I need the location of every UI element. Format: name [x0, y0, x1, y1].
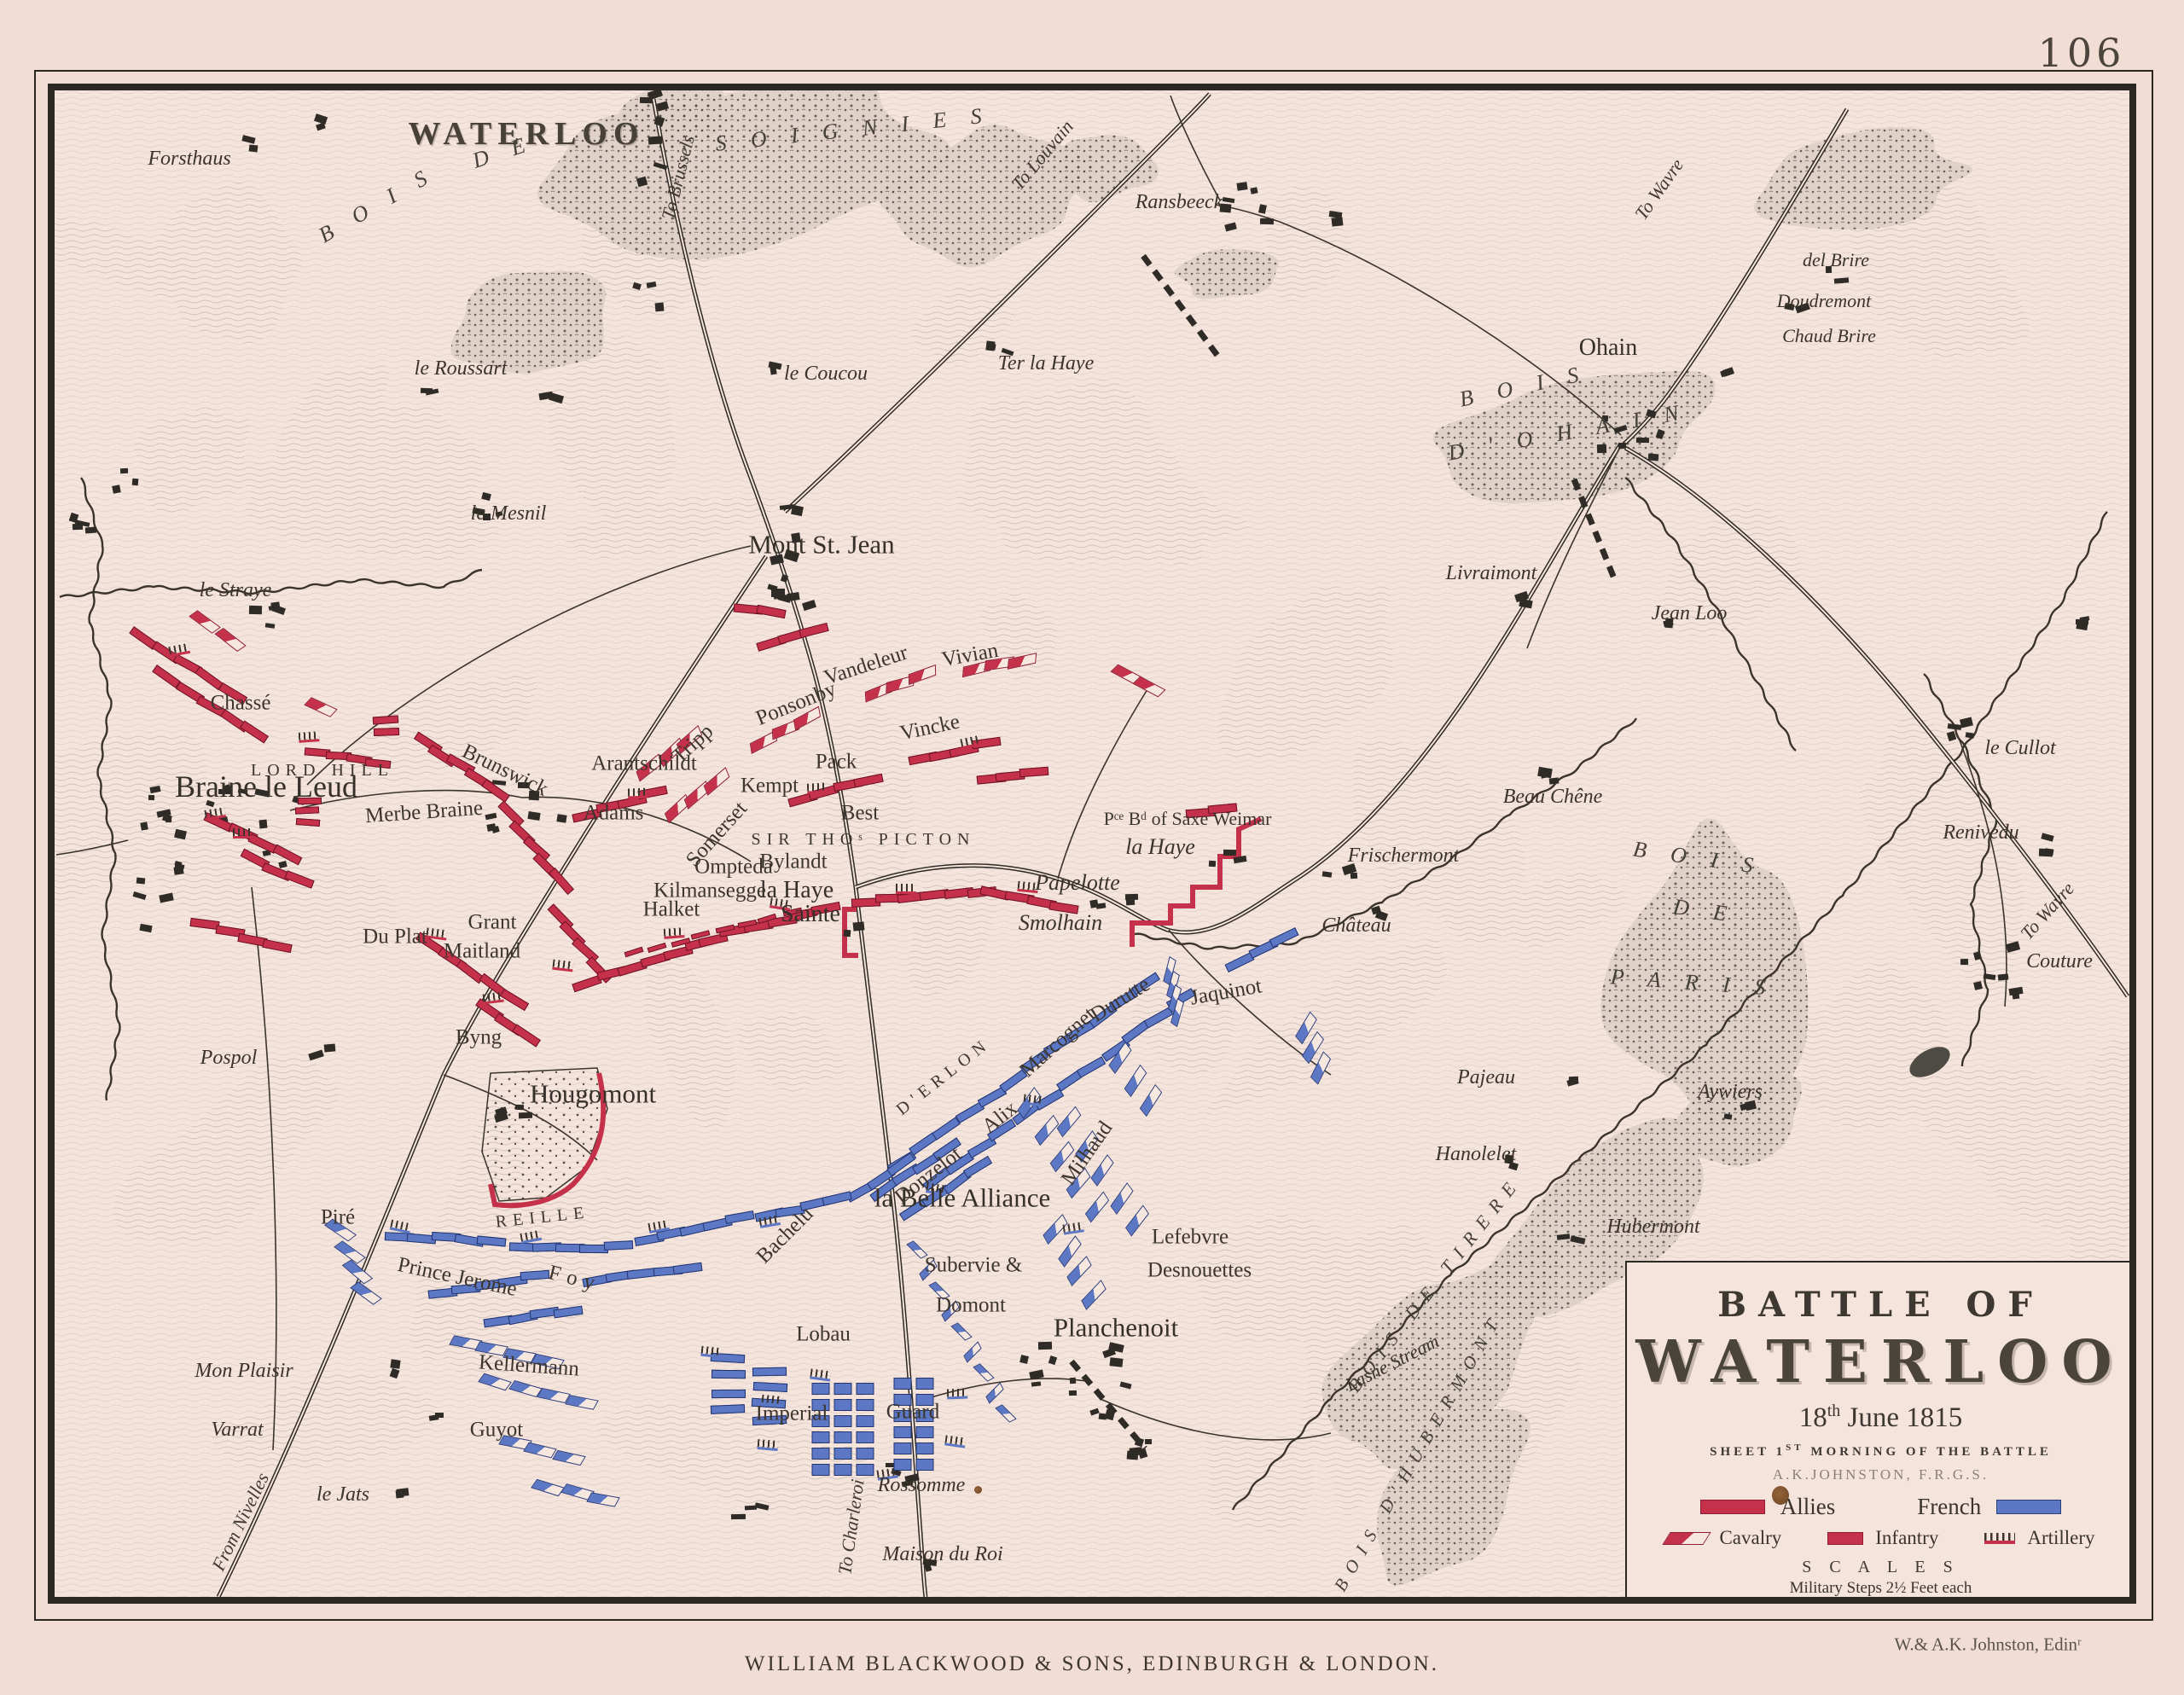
map-label: Mon Plaisir [195, 1361, 293, 1381]
map-label: Papelotte [1035, 872, 1120, 894]
map-label: REILLE [495, 1204, 590, 1230]
map-label: Lobau [796, 1324, 851, 1345]
map-label: Rossomme [878, 1475, 966, 1495]
map-label: le Jats [317, 1484, 369, 1505]
map-label: Piré [321, 1207, 355, 1228]
map-label: Subervie & [925, 1255, 1023, 1276]
map-label: Alix [979, 1097, 1021, 1137]
map-label: Grant [468, 912, 517, 933]
cavalry-symbol-icon [1663, 1532, 1711, 1545]
ink-stain [974, 1486, 982, 1494]
map-label: Adams [584, 803, 644, 824]
map-label: le Mesnil [471, 503, 547, 524]
map-label: Hougomont [530, 1081, 656, 1107]
legend-sides: Allies French [1700, 1494, 2061, 1520]
map-label: D'ERLON [893, 1035, 994, 1118]
map-label: Jaquinot [1188, 975, 1263, 1008]
steps-scale-label: Military Steps 2½ Feet each [1790, 1579, 1972, 1598]
map-label: Doudremont [1777, 292, 1871, 311]
engraver-imprint: W.& A.K. Johnston, Edinʳ [1894, 1634, 2081, 1656]
legend-arms: Cavalry Infantry Artillery [1666, 1527, 2094, 1549]
map-label: Lefebvre [1152, 1227, 1228, 1248]
map-label: B O I S [315, 163, 439, 247]
map-label: Desnouettes [1147, 1260, 1252, 1281]
map-label: B O I S [1632, 838, 1764, 878]
map-label: Livraimont [1446, 563, 1537, 583]
map-label: la Haye [760, 879, 834, 903]
map-label: S O I G N I E S [714, 104, 992, 155]
map-label: To Louvain [1008, 117, 1077, 194]
map-label: Guard [886, 1402, 939, 1423]
map-label: le Coucou [784, 363, 868, 384]
map-label: Vincke [898, 711, 961, 744]
map-label: Best [841, 803, 879, 824]
map-label: Byng [456, 1027, 502, 1048]
sheet-subtitle: SHEET 1ST MORNING OF THE BATTLE [1710, 1442, 2052, 1460]
map-sheet: 106 [0, 0, 2184, 1695]
map-label: Foy [546, 1262, 603, 1295]
cartographer-credit: A.K.JOHNSTON, F.R.G.S. [1773, 1466, 1989, 1483]
map-label: Maitland [444, 941, 520, 962]
map-label: To Wavre [2018, 879, 2078, 943]
map-label: Varrat [211, 1419, 263, 1440]
map-label: Pack [816, 752, 857, 773]
map-label: Château [1321, 915, 1391, 936]
map-label: Pᶜᵉ Bᵈ of Saxe Weimar [1104, 810, 1272, 828]
map-label: Hanolelet [1436, 1144, 1517, 1164]
map-label: Bachelu [752, 1203, 817, 1268]
map-title-line1: BATTLE OF [1717, 1285, 2044, 1325]
map-label: SIR THOˢ PICTON [752, 831, 976, 848]
publisher-imprint: WILLIAM BLACKWOOD & SONS, EDINBURGH & LO… [745, 1652, 1439, 1676]
title-cartouche: BATTLE OF WATERLOO 18th June 1815 SHEET … [1625, 1261, 2135, 1597]
map-label: From Nivelles [209, 1470, 272, 1573]
map-label: Sainte [781, 903, 840, 926]
cavalry-legend-label: Cavalry [1719, 1527, 1781, 1549]
map-label: Jean Loo [1652, 603, 1728, 624]
map-label: Hubermont [1606, 1216, 1699, 1237]
map-label: Pospol [200, 1048, 258, 1068]
map-label: To Brussels [659, 133, 698, 222]
artillery-legend-label: Artillery [2027, 1527, 2094, 1549]
map-title-line2: WATERLOO [1635, 1328, 2125, 1396]
map-label: Chaud Brire [1782, 327, 1876, 345]
map-label: Ter la Haye [998, 353, 1094, 374]
map-label: Ohain [1579, 336, 1637, 360]
map-label: Frischermont [1348, 845, 1460, 866]
map-label: Maison du Roi [882, 1544, 1002, 1564]
map-label: Planchenoit [1054, 1315, 1178, 1341]
map-label: Guyot [470, 1419, 524, 1441]
french-color-swatch [1996, 1500, 2061, 1514]
map-label: Renivedu [1943, 822, 2018, 843]
map-label: Ompteda [694, 856, 773, 878]
scales-heading: S C A L E S [1802, 1558, 1960, 1577]
scale-bar [1668, 1603, 2094, 1604]
map-label: Vandeleur [822, 641, 910, 688]
map-label: D E [1671, 896, 1737, 926]
map-label: Ponsonby [753, 678, 839, 729]
map-label: Imperial [756, 1403, 828, 1425]
map-label: Domont [936, 1295, 1006, 1316]
map-label: Merbe Braine [364, 798, 484, 827]
battle-date: 18th June 1815 [1799, 1402, 1963, 1434]
map-label: LORD HILL [251, 762, 394, 779]
map-label: Chassé [211, 693, 271, 714]
map-label: la Haye [1125, 836, 1195, 858]
plate-number: 106 [2038, 30, 2126, 76]
map-label: le Cullot [1984, 738, 2055, 758]
map-label: D ' O H A I N [1446, 400, 1689, 464]
map-label: P A R I S [1610, 966, 1775, 999]
miles-scale-label: English Miles [1835, 1598, 1926, 1604]
map-label: Durutte [1087, 973, 1153, 1026]
map-label: Vivian [940, 640, 1000, 670]
infantry-legend-label: Infantry [1875, 1527, 1938, 1549]
ink-stain [1772, 1486, 1789, 1505]
map-label: Halket [643, 899, 700, 920]
map-label: Couture [2026, 951, 2093, 972]
french-legend-label: French [1917, 1494, 1981, 1520]
map-label: Brunswick [459, 740, 551, 800]
map-label: Kellermann [478, 1351, 579, 1379]
map-label: le Straye [200, 580, 272, 601]
map-label: Marcognet [1016, 1003, 1099, 1081]
map-label: Kempt [741, 775, 799, 797]
map-label: To Wavre [1632, 155, 1687, 223]
map-label: del Brire [1803, 251, 1869, 270]
map-label: Mont St. Jean [748, 531, 894, 558]
map-label: Ransbeeck [1136, 192, 1223, 212]
map-label: Prince Jerome [396, 1254, 519, 1300]
map-label: Du Plat [363, 926, 427, 948]
map-label: B O I S [1458, 362, 1590, 410]
map-label: Smolhain [1019, 912, 1102, 934]
map-label: Pajeau [1457, 1067, 1515, 1088]
map-label: le Roussart [415, 358, 508, 379]
allies-color-swatch [1700, 1500, 1765, 1514]
map-label: Milhaud [1057, 1117, 1116, 1189]
map-label: Aywiers [1698, 1082, 1763, 1102]
artillery-symbol-icon [1984, 1533, 2015, 1544]
map-label: Forsthaus [148, 148, 230, 169]
infantry-symbol-icon [1827, 1532, 1863, 1545]
battle-map: WATERLOOMont St. JeanBraine le LeudHougo… [48, 84, 2136, 1604]
map-label: Beau Chêne [1503, 787, 1603, 807]
map-label: To Charleroi [835, 1478, 867, 1576]
